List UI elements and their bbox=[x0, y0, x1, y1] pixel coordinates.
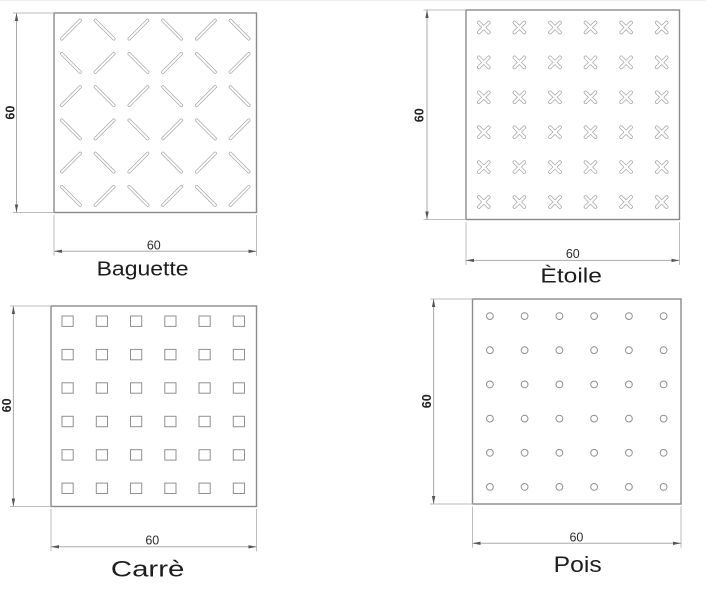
svg-text:Baguette: Baguette bbox=[97, 257, 189, 280]
svg-text:60: 60 bbox=[4, 106, 18, 120]
svg-text:Ètoile: Ètoile bbox=[540, 265, 602, 288]
svg-text:Carrè: Carrè bbox=[111, 557, 185, 582]
svg-text:60: 60 bbox=[420, 394, 434, 408]
svg-text:60: 60 bbox=[413, 108, 427, 122]
svg-text:60: 60 bbox=[566, 247, 580, 261]
svg-text:60: 60 bbox=[569, 531, 583, 545]
svg-text:60: 60 bbox=[0, 398, 14, 412]
svg-text:Pois: Pois bbox=[554, 552, 602, 577]
svg-text:60: 60 bbox=[147, 239, 161, 253]
svg-text:60: 60 bbox=[145, 533, 159, 547]
